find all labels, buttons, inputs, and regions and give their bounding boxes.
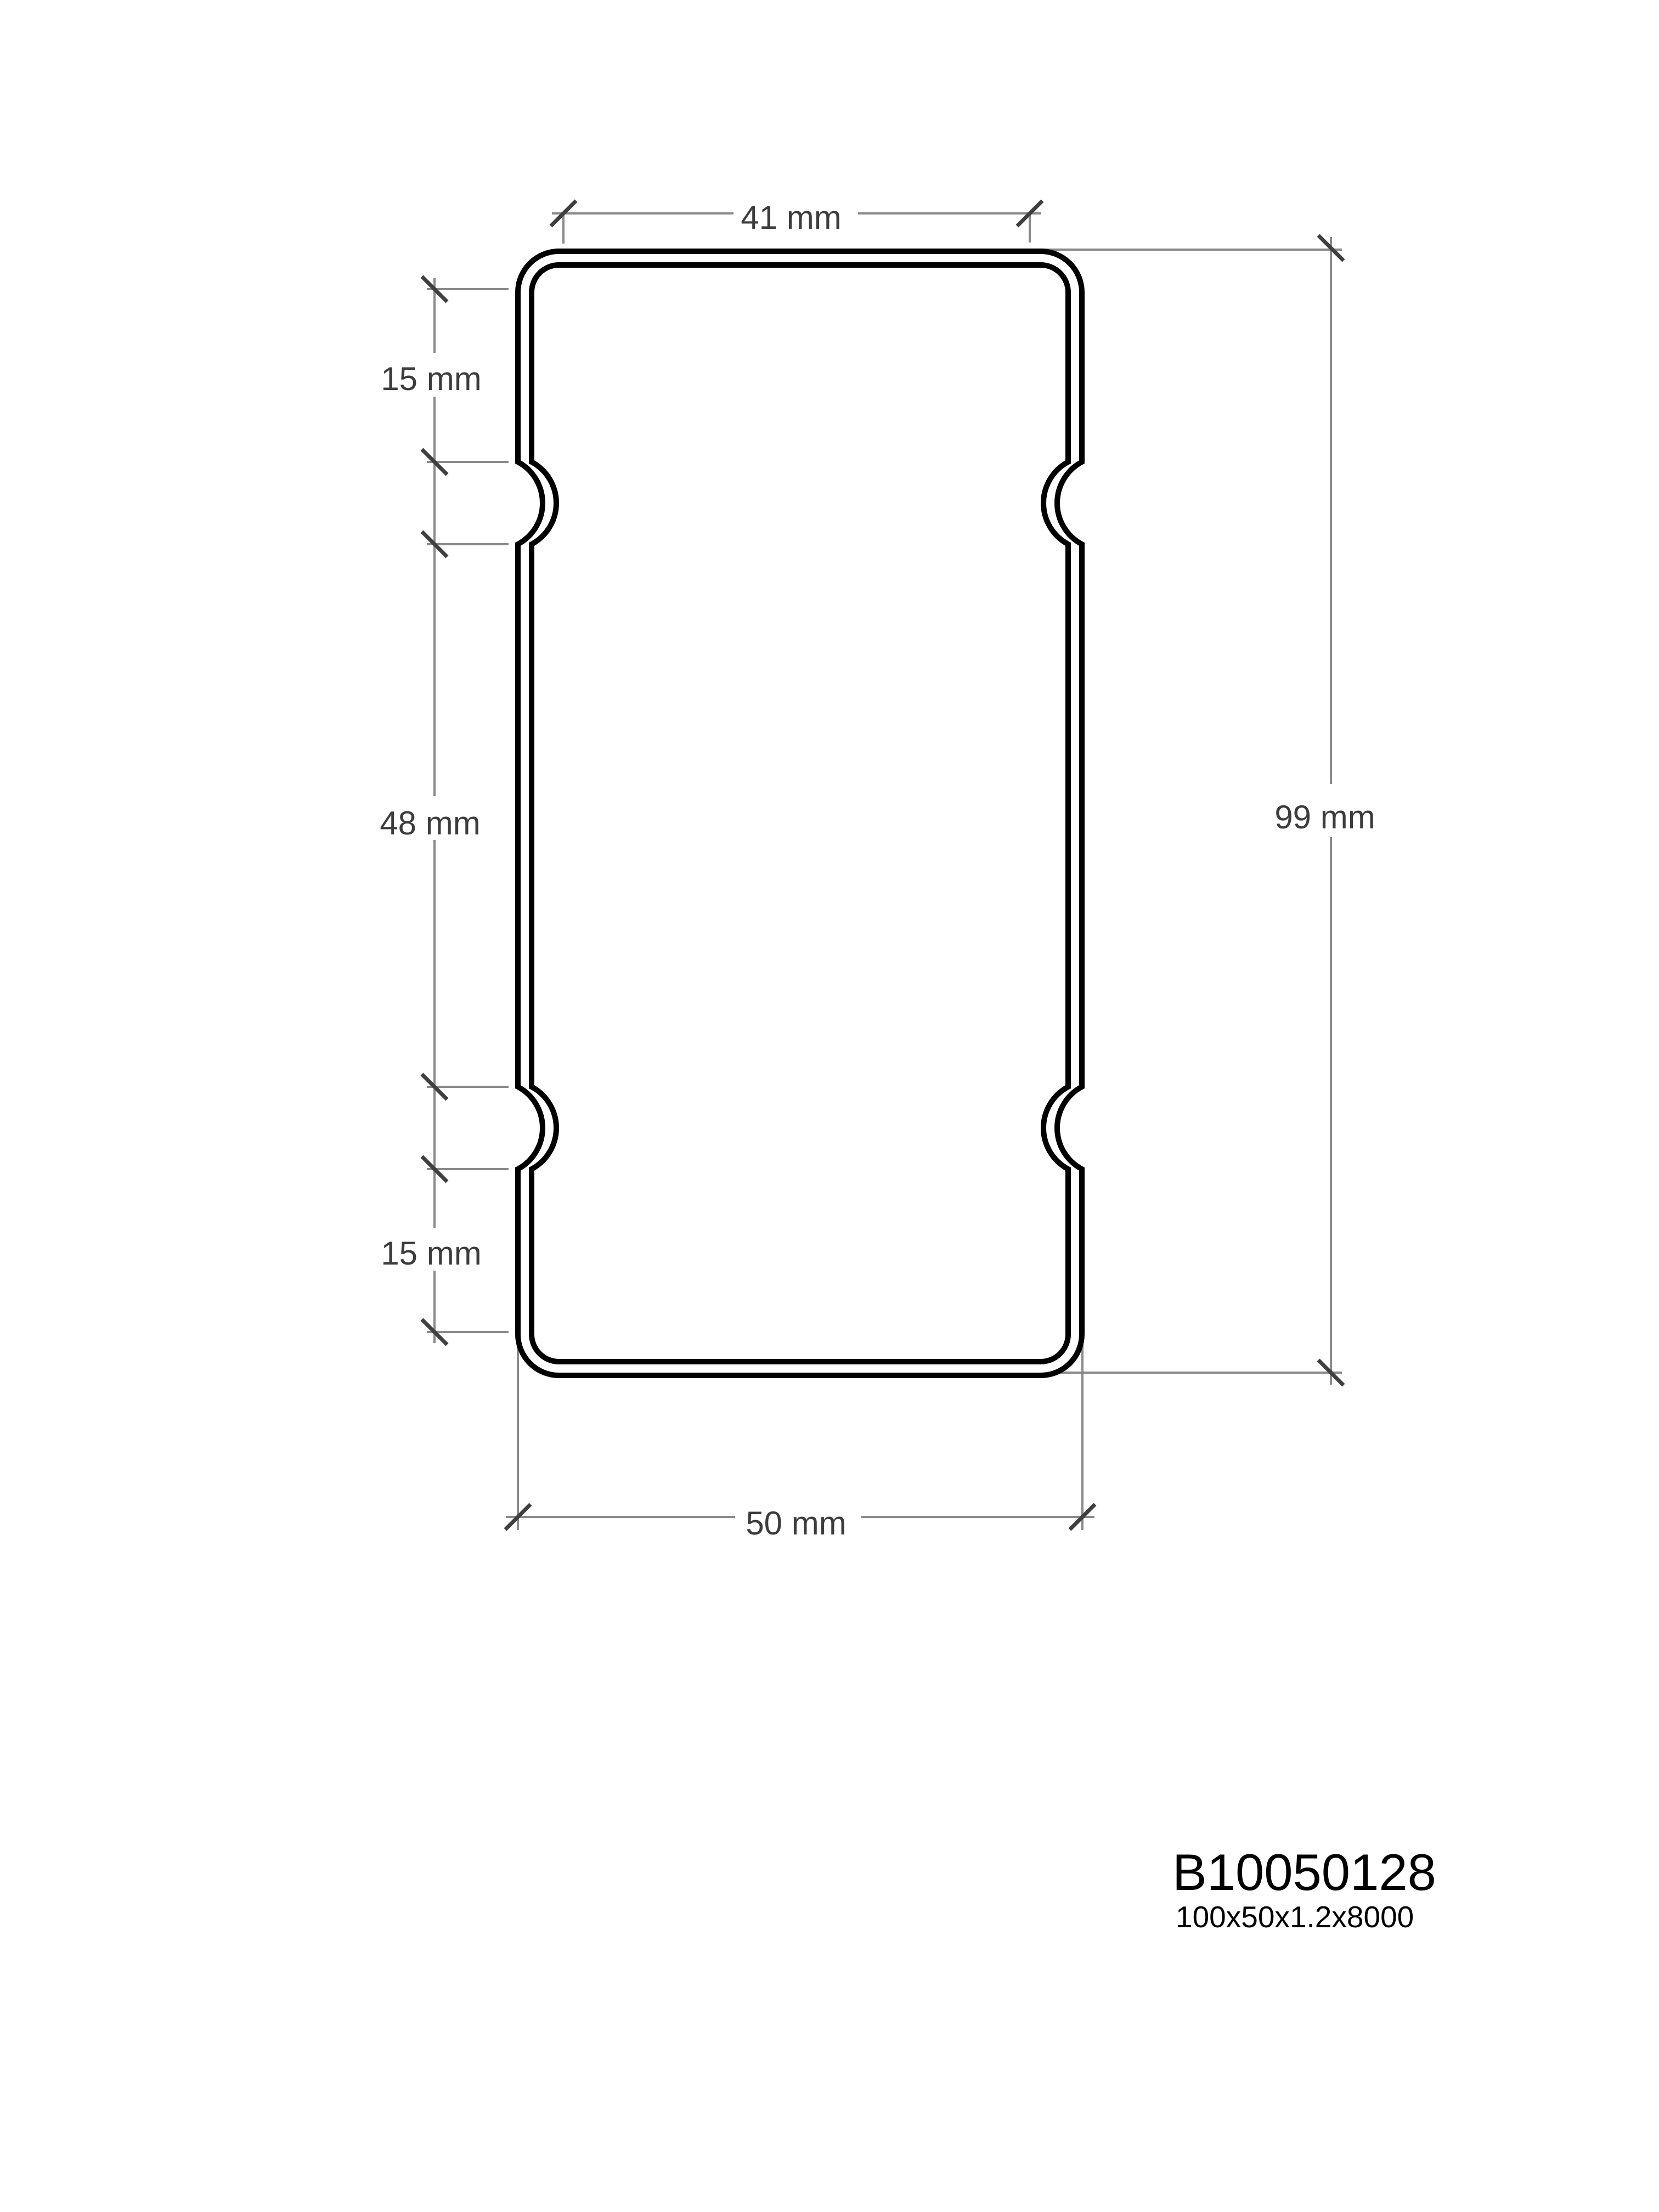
svg-text:41 mm: 41 mm	[741, 199, 841, 236]
svg-text:B10050128: B10050128	[1172, 1843, 1436, 1901]
svg-text:15 mm: 15 mm	[381, 1235, 481, 1272]
svg-text:99 mm: 99 mm	[1274, 799, 1375, 836]
svg-text:48 mm: 48 mm	[380, 805, 480, 842]
svg-text:50 mm: 50 mm	[746, 1505, 846, 1542]
svg-text:15 mm: 15 mm	[381, 360, 481, 397]
svg-text:100x50x1.2x8000: 100x50x1.2x8000	[1176, 1900, 1414, 1934]
